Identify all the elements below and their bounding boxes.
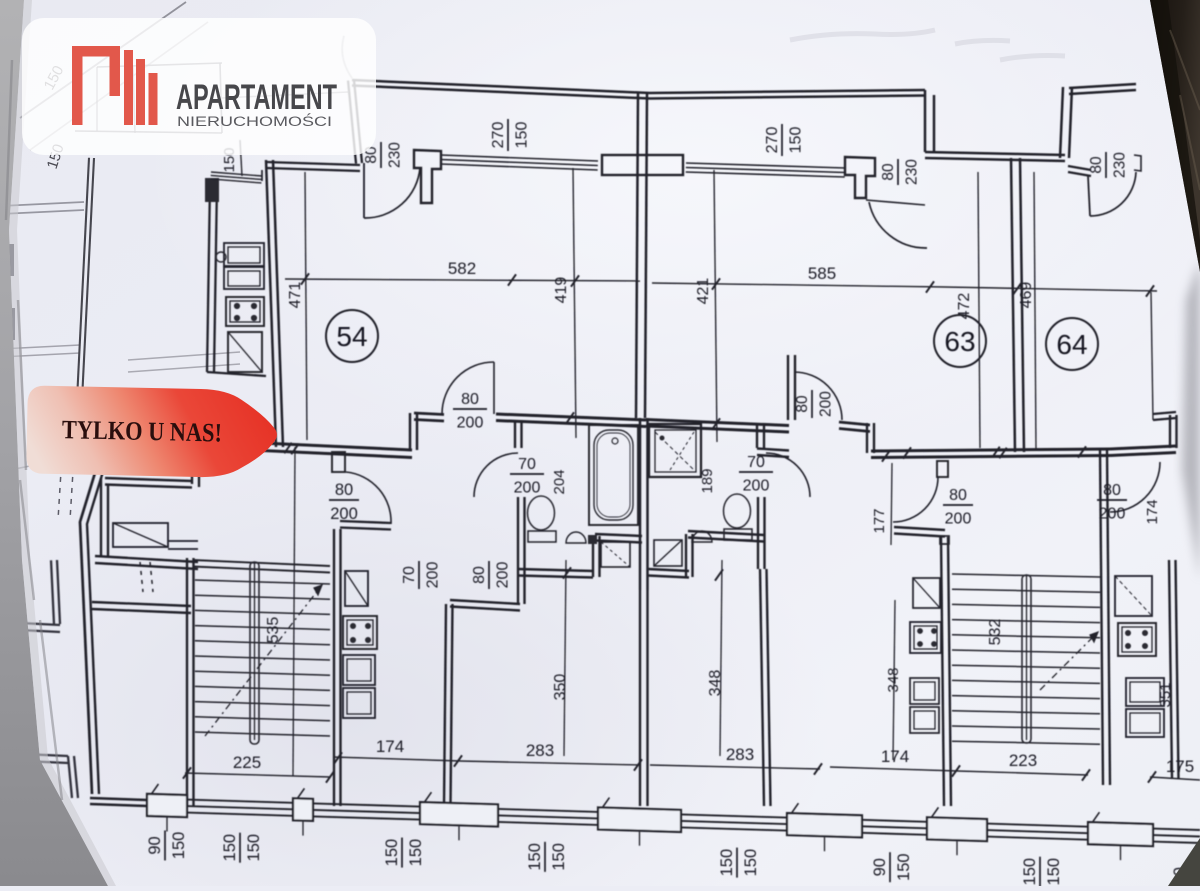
- svg-text:NIERUCHOMOŚCI: NIERUCHOMOŚCI: [177, 114, 332, 129]
- svg-text:223: 223: [1009, 751, 1037, 770]
- svg-text:270: 270: [490, 122, 507, 149]
- svg-text:80: 80: [461, 391, 479, 408]
- svg-text:150: 150: [245, 834, 263, 862]
- svg-text:70: 70: [518, 456, 536, 473]
- svg-text:283: 283: [726, 745, 754, 764]
- svg-text:200: 200: [330, 505, 358, 523]
- svg-text:348: 348: [707, 670, 724, 697]
- svg-text:582: 582: [448, 259, 476, 278]
- svg-text:177: 177: [871, 508, 888, 533]
- svg-text:150: 150: [742, 849, 760, 877]
- svg-text:80: 80: [335, 481, 353, 499]
- svg-text:150: 150: [514, 122, 531, 149]
- svg-text:APARTAMENT: APARTAMENT: [176, 78, 337, 117]
- svg-text:350: 350: [552, 674, 569, 701]
- svg-text:200: 200: [817, 391, 834, 417]
- svg-text:230: 230: [1111, 152, 1128, 178]
- svg-text:90: 90: [146, 836, 164, 854]
- svg-text:200: 200: [425, 562, 442, 589]
- svg-text:150: 150: [895, 853, 913, 881]
- svg-text:419: 419: [553, 277, 570, 304]
- svg-text:150: 150: [718, 849, 736, 877]
- svg-text:200: 200: [457, 415, 484, 432]
- svg-text:532: 532: [987, 619, 1004, 646]
- svg-text:351: 351: [1157, 682, 1174, 707]
- svg-text:80: 80: [880, 163, 897, 181]
- svg-text:174: 174: [1144, 499, 1161, 524]
- svg-text:80: 80: [1088, 156, 1105, 174]
- svg-text:200: 200: [514, 480, 541, 497]
- svg-text:90: 90: [871, 858, 889, 876]
- svg-text:230: 230: [903, 159, 920, 185]
- svg-text:150: 150: [526, 843, 544, 871]
- svg-text:150: 150: [170, 832, 188, 860]
- svg-text:150: 150: [407, 839, 425, 867]
- svg-text:200: 200: [495, 562, 512, 589]
- svg-text:TYLKO U NAS!: TYLKO U NAS!: [62, 414, 223, 447]
- svg-text:80: 80: [949, 487, 967, 504]
- svg-text:150: 150: [221, 834, 239, 862]
- svg-text:150: 150: [788, 127, 805, 154]
- svg-text:150: 150: [1045, 858, 1063, 886]
- svg-text:150: 150: [1021, 858, 1039, 886]
- svg-text:63: 63: [944, 326, 975, 357]
- svg-text:585: 585: [808, 264, 836, 283]
- svg-text:230: 230: [386, 142, 403, 168]
- svg-text:174: 174: [376, 737, 404, 756]
- svg-text:64: 64: [1056, 329, 1087, 360]
- svg-text:283: 283: [526, 741, 554, 760]
- svg-text:270: 270: [764, 127, 781, 154]
- svg-text:70: 70: [747, 454, 765, 471]
- svg-text:80: 80: [1103, 482, 1121, 499]
- svg-text:535: 535: [265, 617, 282, 644]
- svg-text:70: 70: [401, 566, 418, 584]
- svg-text:175: 175: [1166, 757, 1194, 776]
- svg-text:200: 200: [743, 478, 770, 495]
- svg-text:471: 471: [287, 282, 304, 309]
- svg-text:150: 150: [383, 839, 401, 867]
- svg-text:204: 204: [551, 469, 568, 494]
- svg-text:80: 80: [471, 566, 488, 584]
- svg-text:150: 150: [550, 843, 568, 871]
- svg-text:200: 200: [1099, 506, 1126, 523]
- svg-text:200: 200: [945, 511, 972, 528]
- svg-text:54: 54: [336, 321, 367, 352]
- svg-text:174: 174: [881, 747, 909, 766]
- svg-text:189: 189: [699, 468, 716, 493]
- svg-text:421: 421: [695, 278, 712, 305]
- svg-text:225: 225: [233, 753, 261, 772]
- svg-text:80: 80: [794, 395, 811, 413]
